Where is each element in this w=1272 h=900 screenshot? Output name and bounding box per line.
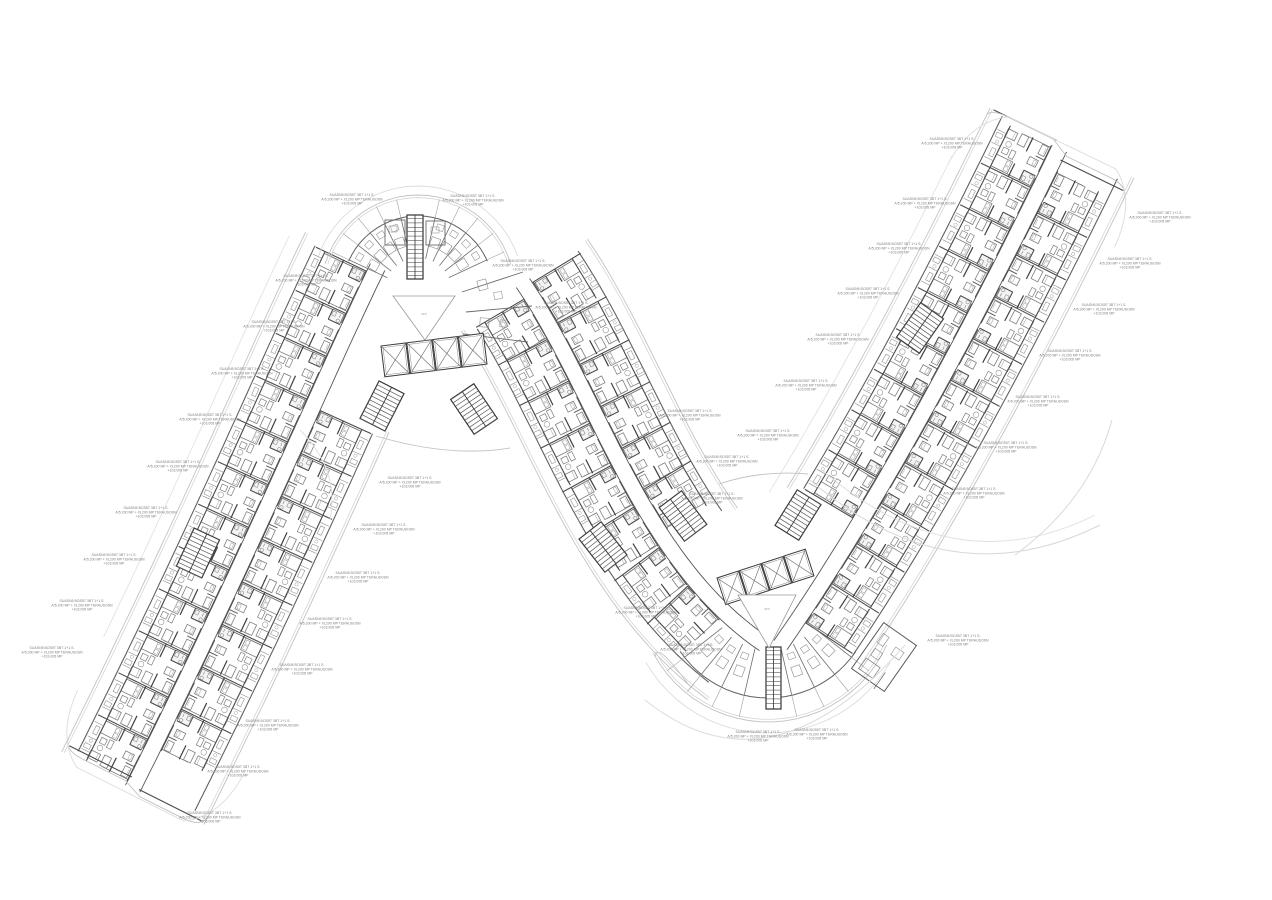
svg-text:ATR: ATR <box>764 607 769 611</box>
svg-text:ATR: ATR <box>421 312 426 316</box>
